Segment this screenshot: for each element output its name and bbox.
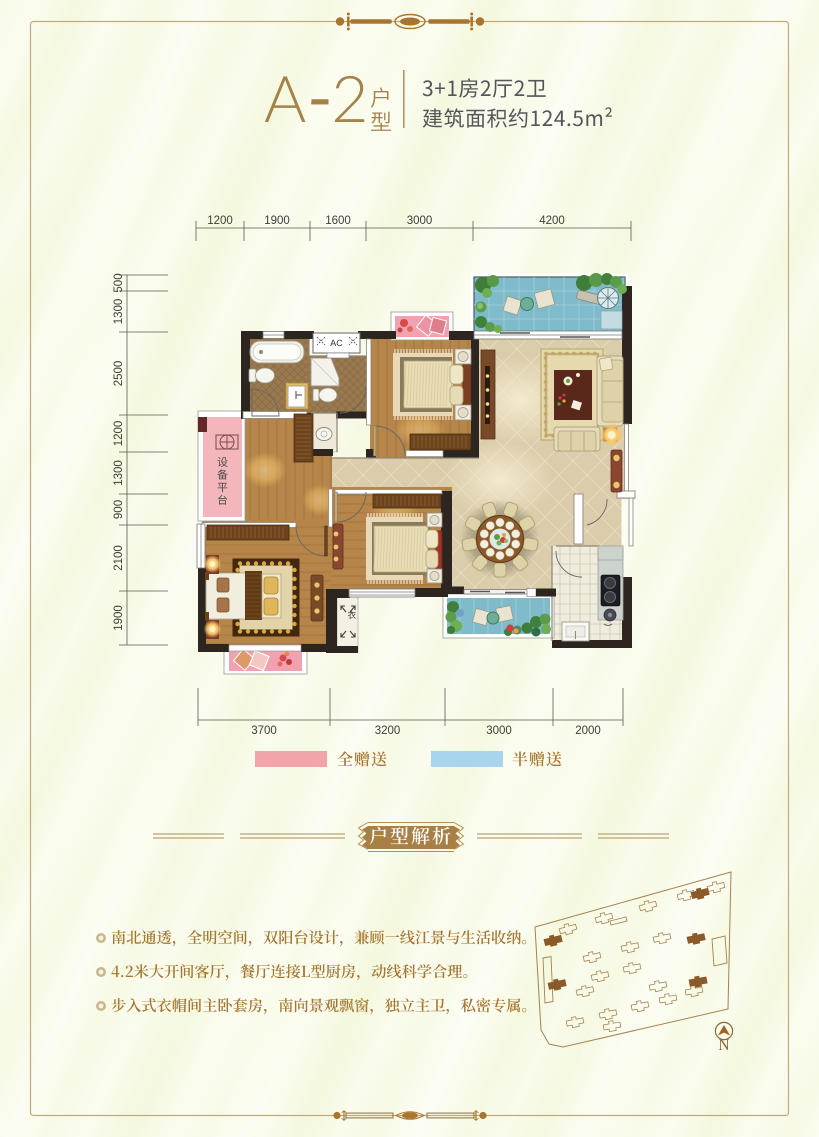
svg-text:2100: 2100 <box>113 545 125 571</box>
svg-text:3000: 3000 <box>407 215 433 227</box>
svg-text:1300: 1300 <box>113 460 125 486</box>
svg-text:N: N <box>718 1037 729 1054</box>
svg-text:1600: 1600 <box>325 215 351 227</box>
svg-text:500: 500 <box>113 273 125 292</box>
svg-text:3200: 3200 <box>375 725 401 737</box>
svg-text:1200: 1200 <box>207 215 233 227</box>
svg-text:3000: 3000 <box>486 725 512 737</box>
svg-text:3700: 3700 <box>251 725 277 737</box>
svg-text:1200: 1200 <box>113 421 125 447</box>
svg-text:1300: 1300 <box>113 299 125 325</box>
svg-text:900: 900 <box>113 500 125 519</box>
svg-text:4200: 4200 <box>539 215 565 227</box>
svg-text:2500: 2500 <box>113 361 125 387</box>
svg-text:1900: 1900 <box>113 605 125 631</box>
svg-text:2000: 2000 <box>575 725 601 737</box>
svg-text:1900: 1900 <box>264 215 290 227</box>
